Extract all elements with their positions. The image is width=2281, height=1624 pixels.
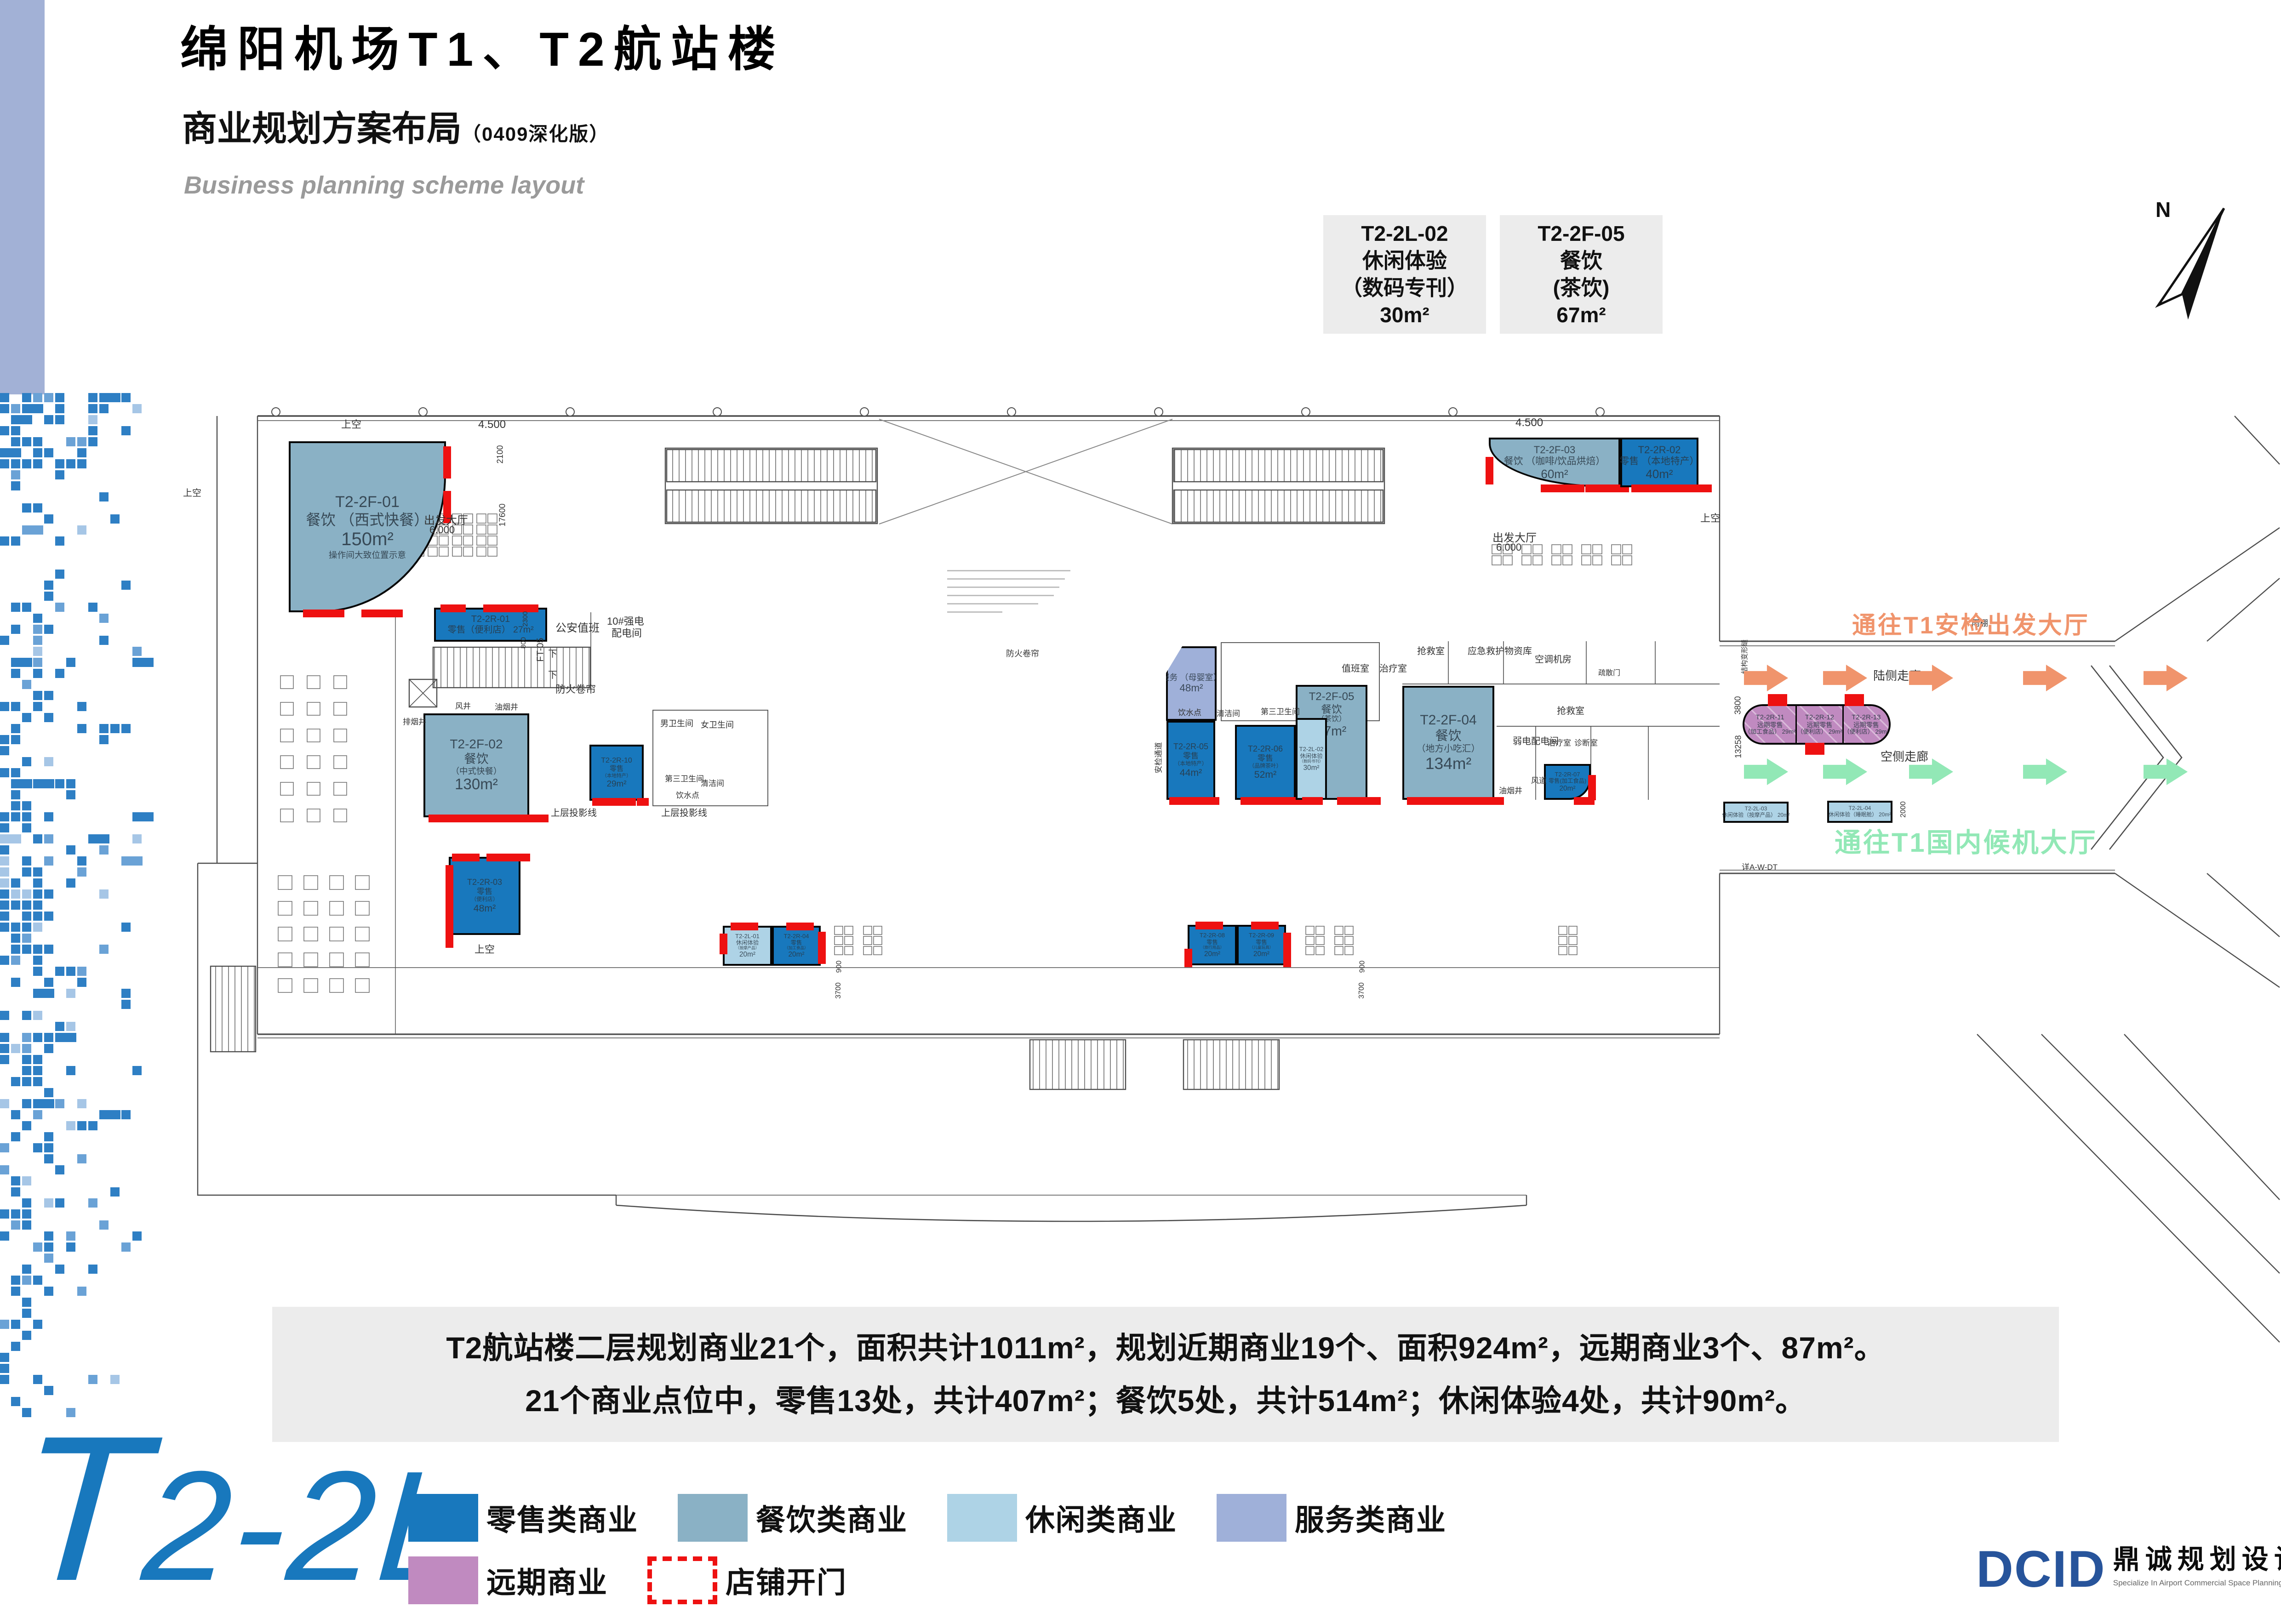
zone-t2-2l-04: T2-2L-04休闲体验（睡眠舱） 20m² (1827, 801, 1892, 823)
cad-room-label: 900 (1358, 961, 1366, 973)
zone-label: 20m² (1253, 950, 1269, 958)
cad-note-line (947, 611, 1002, 613)
north-arrow-icon: N (2143, 193, 2244, 331)
zone-label: T2-2R-09 (1249, 932, 1274, 939)
zone-label: T2-2L-04 (1849, 805, 1871, 812)
zone-label: 零售 (610, 765, 623, 773)
shop-door-mark (440, 604, 466, 612)
zone-label: 150m² (341, 529, 394, 550)
zone-label: 134m² (1425, 754, 1471, 773)
zone-t2-2r-03: T2-2R-03零售（便利店）48m² (449, 857, 520, 935)
cad-room-label: 空侧走廊 (1881, 747, 1928, 764)
zone-t2-2r-01: T2-2R-01零售（便利店） 27m² (434, 608, 547, 642)
cad-room-label: 4.500 (478, 418, 506, 431)
zone-label: （地方小吃汇） (1417, 744, 1480, 754)
shop-door-mark (505, 815, 549, 822)
shop-door-mark (818, 932, 826, 964)
zone-label: 零售 (1256, 939, 1267, 946)
cad-room-label: 诊断室 (1574, 736, 1598, 748)
zone-label: 60m² (1541, 467, 1568, 481)
cad-room-label: 油烟井 (1499, 784, 1522, 796)
zone-label: T2-2F-02 (450, 737, 503, 752)
zone-label: （本地特产） (1174, 761, 1207, 767)
cad-room-label: 女卫生间 (701, 718, 734, 730)
cad-note-line (947, 578, 1065, 580)
cad-room-label: 男卫生间 (660, 717, 693, 729)
cad-room-label: 结构变形缝 (1739, 639, 1749, 674)
cad-room-label: 上空 (341, 416, 361, 431)
cad-room-label: 风井 (455, 700, 471, 711)
cad-room-label: 上空 (183, 485, 201, 499)
shop-door-mark (1805, 743, 1824, 755)
zone-label: 操作间大致位置示意 (329, 550, 406, 560)
zone-label: （加工食品） (784, 946, 808, 951)
shop-door-mark (786, 923, 814, 930)
zone-label: 29m² (607, 779, 627, 789)
shop-door-mark (361, 610, 403, 617)
zone-label: T2-2L-02 (1299, 746, 1324, 752)
summary-line2: 21个商业点位中，零售13处，共计407m²；餐饮5处，共计514m²；休闲体验… (525, 1374, 1806, 1428)
cad-room-label: 4.500 (1515, 416, 1543, 429)
shop-door-mark (1199, 797, 1219, 805)
cad-room-label: 第三卫生间 (1261, 705, 1300, 717)
legend-item-4: 远期商业 (408, 1556, 608, 1604)
legend-item-2: 休闲类商业 (947, 1494, 1177, 1542)
logo-company-name: 鼎诚规划设计 (2113, 1544, 2281, 1576)
zone-label: 零售 (1258, 754, 1273, 763)
cad-room-label: 风道 (1531, 774, 1547, 786)
zone-label: 服务 （母婴室） (1161, 673, 1221, 683)
cad-room-label: 上空 (1700, 510, 1721, 525)
shop-door-mark (1169, 797, 1201, 805)
cad-room-label: 3700 (1358, 982, 1366, 999)
zone-label: 44m² (1180, 767, 1202, 779)
zone-t2-2r-08: T2-2R-08零售（旅行用品）20m² (1188, 925, 1237, 965)
shop-door-mark (1670, 484, 1712, 492)
cad-room-label: 公安值班 (555, 619, 600, 635)
cad-room-label: 上空 (474, 941, 495, 956)
legend-label: 远期商业 (486, 1559, 608, 1601)
zone-t2-2r-10: T2-2R-10零售（本地特产）29m² (589, 745, 644, 801)
cad-room-label: 6.000 (1496, 541, 1521, 553)
shop-door-mark (446, 904, 453, 948)
cad-room-label: 3800 (1733, 696, 1743, 714)
shop-door-mark (1195, 922, 1223, 929)
route-text-security-hall: 通往T1安检出发大厅 (1852, 606, 2090, 640)
zone-t2-2r-05: T2-2R-05零售（本地特产）44m² (1166, 721, 1215, 800)
zone-t2-2r-06: T2-2R-06零售（品牌茶叶）52m² (1235, 725, 1296, 800)
legend-label: 服务类商业 (1295, 1497, 1446, 1539)
future-retail-capsule: T2-2R-11远期零售（加工食品） 29m²T2-2R-12远期零售（便利店）… (1743, 704, 1891, 745)
shop-door-mark (1588, 775, 1596, 800)
page-code-big: T (11, 1393, 154, 1624)
zone-label: （旅行用品） (1201, 946, 1224, 950)
zone-label: 餐饮 (464, 752, 488, 766)
zone-label: 20m² (1560, 785, 1576, 793)
cad-room-label: 饮水点 (676, 789, 699, 800)
zone-label: （中式快餐） (451, 766, 502, 776)
cad-room-label: 治疗室 (1379, 661, 1407, 674)
zone-label: T2-2R-07 (1555, 771, 1580, 778)
shop-door-mark (303, 610, 344, 617)
legend-swatch (947, 1494, 1017, 1542)
zone-t2-2l-03: T2-2L-03休闲体验（按摩产品） 20m² (1723, 802, 1789, 823)
zone-label: （便利店） 29m² (1844, 729, 1889, 735)
shop-door-mark (637, 798, 649, 806)
cad-room-label: 抢救室 (1417, 644, 1445, 657)
shop-door-mark (1845, 694, 1864, 706)
legend-swatch (1217, 1494, 1286, 1542)
cad-room-label: 抢救室 (1557, 703, 1584, 717)
cad-room-label: 下 (548, 646, 557, 660)
legend-item-1: 餐饮类商业 (678, 1494, 908, 1542)
zone-t2-2r-11: T2-2R-11远期零售（加工食品） 29m² (1744, 706, 1797, 743)
zone-label: 48m² (1179, 682, 1203, 694)
cad-room-label: 3700 (835, 982, 843, 999)
zone-label: （按摩产品） (736, 946, 759, 951)
cad-room-label: 疏散门 (1598, 667, 1620, 678)
zone-label: 休闲体验（按摩产品） 20m² (1722, 812, 1790, 819)
zone-label: T2-2F-05 (1309, 690, 1355, 703)
cad-room-label: 上层投影线 (661, 805, 707, 819)
cad-room-label: 清洁间 (1217, 707, 1240, 718)
shop-door-mark (465, 815, 509, 822)
legend-label: 休闲类商业 (1025, 1497, 1177, 1539)
shop-door-mark (1302, 797, 1323, 805)
cad-room-label: 13258 (1734, 735, 1744, 758)
legend-item-5: 店铺开门 (647, 1556, 847, 1604)
zone-label: （加工食品） 29m² (1744, 729, 1795, 735)
zone-label: 30m² (1303, 764, 1320, 772)
cad-room-label: 下 (548, 667, 557, 681)
zone-label: 零售 (477, 887, 492, 896)
zone-label: T2-2R-02 (1638, 444, 1681, 456)
zone-label: T2-2R-12 (1805, 713, 1834, 721)
zone-label: 52m² (1254, 769, 1276, 781)
zone-label: 休闲体验（睡眠舱） 20m² (1829, 812, 1891, 818)
zone-label: 远期零售 (1853, 721, 1879, 729)
shop-door-mark (1337, 797, 1381, 805)
cad-room-label: 治疗室 (1548, 736, 1571, 748)
shop-door-mark (1184, 949, 1192, 967)
zone-label: 20m² (739, 951, 755, 959)
shop-door-mark (452, 854, 480, 861)
zone-t2-2r-13: T2-2R-13远期零售（便利店） 29m² (1844, 706, 1889, 743)
cad-room-label: 2100 (496, 445, 505, 463)
zone-label: 餐饮 （咖啡/饮品烘焙） (1504, 456, 1606, 467)
shop-door-mark (1574, 797, 1595, 805)
zone-label: T2-2F-04 (1420, 712, 1476, 729)
cad-room-label: 清洁间 (701, 777, 724, 788)
cad-room-label: 排烟井 (403, 715, 426, 727)
cad-room-label: 空调机房 (1535, 652, 1572, 665)
shop-door-mark (1541, 484, 1584, 492)
logo-tagline: Specialize In Airport Commercial Space P… (2113, 1578, 2281, 1588)
dcid-logo-icon: DCID (1976, 1544, 2106, 1595)
zone-label: （便利店） 29m² (1797, 729, 1842, 735)
cad-note-line (947, 603, 1038, 604)
zone-t2-2r-02: T2-2R-02零售 （本地特产）40m² (1620, 438, 1698, 487)
zone-t2-2r-09: T2-2R-09零售（儿童玩具）20m² (1237, 925, 1286, 965)
zone-label: 零售 (1183, 752, 1199, 761)
legend-item-3: 服务类商业 (1217, 1494, 1446, 1542)
legend-swatch (678, 1494, 748, 1542)
svg-text:N: N (2155, 198, 2171, 222)
zone-label: 餐饮 (1435, 729, 1461, 744)
shop-door-mark (1465, 797, 1504, 805)
page-code-t2-2l: T2-2L (11, 1416, 476, 1616)
shop-door-mark (1486, 457, 1493, 484)
zone-label: 远期零售 (1757, 721, 1783, 729)
cad-room-label: 防火卷帘 (555, 681, 596, 696)
legend-swatch (408, 1494, 478, 1542)
zone-label: 零售（便利店） 27m² (447, 625, 533, 635)
cad-room-label: 应急救护物资库 (1468, 644, 1532, 657)
shop-door-mark (592, 798, 636, 806)
zone-label: 零售(加工食品) (1549, 778, 1586, 784)
cad-room-label: 6.000 (429, 524, 455, 536)
cad-room-label: 17600 (498, 503, 508, 526)
legend-item-0: 零售类商业 (408, 1494, 638, 1542)
shop-door-mark (483, 604, 538, 612)
legend-row-2: 远期商业店铺开门 (408, 1556, 886, 1604)
summary-line1: T2航站楼二层规划商业21个，面积共计1011m²，规划近期商业19个、面积92… (446, 1322, 1885, 1375)
zone-label: 130m² (455, 776, 498, 793)
zone-label: 休闲体验 (1300, 753, 1322, 759)
cad-room-label: 900 (835, 961, 843, 973)
cad-room-label: 2300 (521, 611, 529, 627)
cad-room-label: 第三卫生间 (665, 772, 704, 784)
cad-room-label: 防火卷帘 (1006, 647, 1039, 659)
cad-room-label: 2000 (1899, 801, 1908, 818)
shop-door-mark (486, 854, 530, 861)
zone-t2-2f-02: T2-2F-02餐饮（中式快餐）130m² (423, 713, 529, 817)
cad-note-line (947, 587, 1059, 588)
shop-door-mark (1283, 933, 1291, 967)
legend-swatch (408, 1556, 478, 1604)
shop-door-mark (443, 446, 451, 479)
zone-label: T2-2F-01 (335, 493, 400, 511)
zone-label: 零售 (1206, 939, 1218, 946)
cad-room-label: 配电间 (612, 625, 642, 640)
cad-room-label: 上层投影线 (551, 805, 597, 819)
zone-label: T2-2R-01 (471, 614, 510, 625)
zone-label: （数码书刊） (1299, 759, 1323, 764)
zone-t2-2r-12: T2-2R-12远期零售（便利店） 29m² (1797, 706, 1843, 743)
cad-room-label: 饮水点 (1178, 706, 1201, 718)
shop-door-mark (731, 923, 758, 930)
route-text-waiting-hall: 通往T1国内候机大厅 (1835, 821, 2098, 860)
zone-label: T2-2R-10 (601, 757, 632, 765)
zone-label: T2-2R-04 (784, 933, 809, 940)
zone-label: T2-2R-03 (467, 878, 502, 887)
cad-room-label: 800 (520, 637, 527, 649)
cad-note-line (947, 570, 1070, 571)
legend-label: 餐饮类商业 (756, 1497, 908, 1539)
cad-room-label: 详A-W-DT (1742, 860, 1778, 872)
zone-label: 远期零售 (1807, 721, 1832, 729)
zone-label: T2-2R-08 (1200, 932, 1225, 939)
legend-label: 店铺开门 (726, 1559, 847, 1601)
zone-label: T2-2R-13 (1852, 713, 1881, 721)
zone-label: 20m² (1204, 950, 1220, 958)
zone-label: T2-2R-06 (1248, 744, 1283, 754)
cad-room-label: FT-05 (536, 638, 546, 661)
zone-label: 48m² (474, 903, 496, 914)
zone-label: T2-2F-03 (1534, 444, 1575, 456)
shop-door-mark (446, 865, 453, 904)
zone-label: 40m² (1646, 467, 1673, 481)
zone-label: （品牌茶叶） (1249, 763, 1281, 769)
cad-note-line (947, 595, 1054, 596)
zone-t2-2l-02: T2-2L-02休闲体验（数码书刊）30m² (1296, 718, 1327, 800)
zone-label: 餐饮 (1321, 703, 1342, 715)
zone-label: T2-2L-01 (735, 933, 760, 940)
zone-t2-2f-04: T2-2F-04餐饮（地方小吃汇）134m² (1402, 686, 1494, 800)
zone-t2-2l-01: T2-2L-01休闲体验（按摩产品）20m² (723, 926, 772, 966)
legend-row-1: 零售类商业餐饮类商业休闲类商业服务类商业 (408, 1494, 1486, 1542)
company-logo: DCID 鼎诚规划设计 Specialize In Airport Commer… (1976, 1544, 2281, 1595)
zone-label: T2-2R-11 (1755, 713, 1784, 721)
zone-label: T2-2L-03 (1745, 806, 1767, 812)
zone-label: （本地特产） (602, 773, 631, 779)
shop-door-mark (1768, 694, 1787, 706)
zone-label: 20m² (789, 951, 805, 959)
legend-label: 零售类商业 (486, 1497, 638, 1539)
cad-room-label: 安检通道 (1152, 742, 1164, 774)
summary-box: T2航站楼二层规划商业21个，面积共计1011m²，规划近期商业19个、面积92… (272, 1307, 2059, 1442)
zone-label: （便利店） (471, 896, 498, 903)
zone-t2-2r-04: T2-2R-04零售（加工食品）20m² (772, 926, 821, 966)
zone-label: 餐饮 （西式快餐） (306, 512, 429, 529)
cad-room-label: 油烟井 (495, 701, 518, 712)
shop-door-mark (1631, 484, 1673, 492)
legend-swatch-door-dash (647, 1556, 717, 1604)
cad-room-label: 值班室 (1342, 661, 1369, 674)
shop-door-mark (720, 934, 727, 954)
zone-label: （儿童玩具） (1250, 946, 1273, 950)
zone-label: T2-2R-05 (1173, 742, 1208, 752)
shop-door-mark (1251, 922, 1279, 929)
zone-label: 零售 （本地特产） (1620, 456, 1699, 467)
